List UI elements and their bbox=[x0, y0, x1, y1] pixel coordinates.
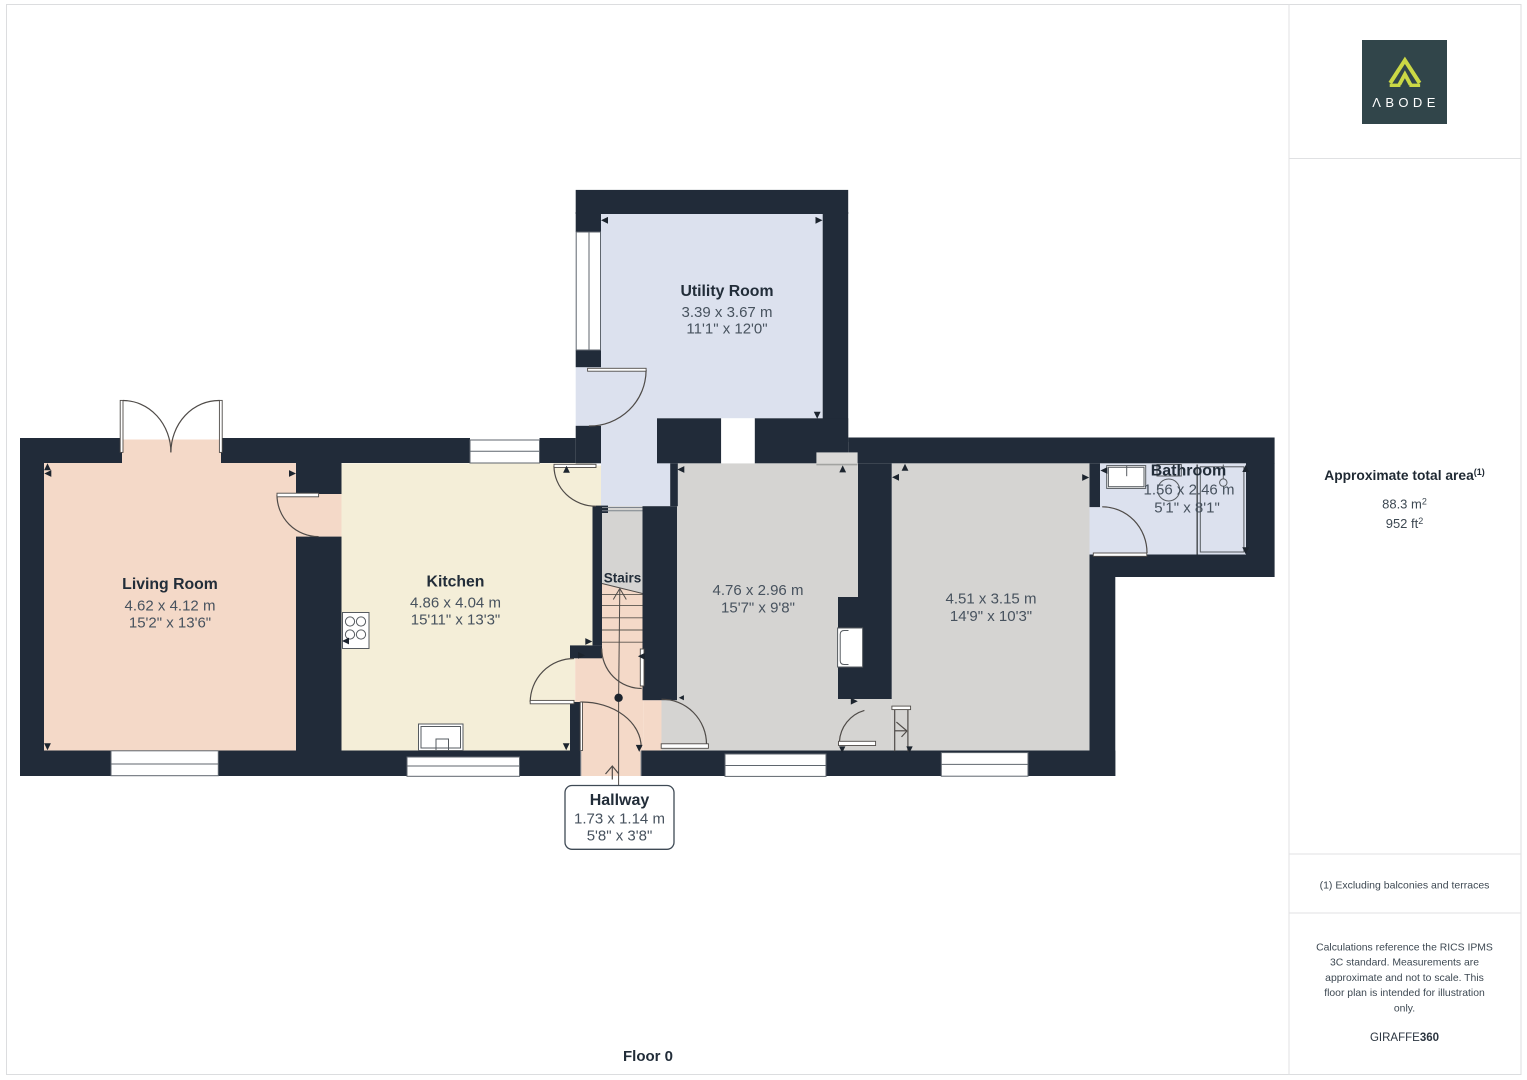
svg-text:3.39 x 3.67 m: 3.39 x 3.67 m bbox=[682, 304, 773, 321]
svg-text:Bathroom: Bathroom bbox=[1151, 463, 1227, 480]
svg-text:5'8" x 3'8": 5'8" x 3'8" bbox=[587, 827, 653, 844]
svg-text:4.51 x 3.15 m: 4.51 x 3.15 m bbox=[946, 591, 1037, 608]
svg-text:952 ft2: 952 ft2 bbox=[1386, 516, 1424, 531]
svg-text:GIRAFFE360: GIRAFFE360 bbox=[1370, 1032, 1439, 1044]
svg-text:15'2" x 13'6": 15'2" x 13'6" bbox=[129, 615, 211, 632]
svg-text:Living Room: Living Room bbox=[122, 576, 218, 593]
svg-text:4.76 x 2.96 m: 4.76 x 2.96 m bbox=[713, 582, 804, 599]
svg-text:15'11" x 13'3": 15'11" x 13'3" bbox=[411, 612, 501, 629]
svg-text:11'1" x 12'0": 11'1" x 12'0" bbox=[686, 321, 767, 338]
svg-text:4.86 x 4.04 m: 4.86 x 4.04 m bbox=[410, 595, 501, 612]
svg-text:floor plan is intended for ill: floor plan is intended for illustration bbox=[1324, 988, 1485, 999]
svg-text:approximate and not to scale.: approximate and not to scale. This bbox=[1325, 973, 1484, 984]
svg-text:1.73 x 1.14 m: 1.73 x 1.14 m bbox=[574, 811, 665, 828]
svg-text:(1) Excluding balconies and te: (1) Excluding balconies and terraces bbox=[1320, 880, 1490, 892]
svg-text:5'1" x 8'1": 5'1" x 8'1" bbox=[1154, 500, 1220, 517]
svg-text:88.3 m2: 88.3 m2 bbox=[1382, 497, 1427, 512]
svg-text:3C standard. Measurements are: 3C standard. Measurements are bbox=[1330, 958, 1479, 969]
svg-text:only.: only. bbox=[1394, 1003, 1415, 1014]
svg-text:Floor 0: Floor 0 bbox=[623, 1048, 673, 1065]
svg-text:Calculations reference the RIC: Calculations reference the RICS IPMS bbox=[1316, 943, 1493, 954]
svg-text:14'9" x 10'3": 14'9" x 10'3" bbox=[950, 608, 1032, 625]
svg-text:1.56 x 2.46 m: 1.56 x 2.46 m bbox=[1144, 482, 1235, 499]
svg-text:Utility Room: Utility Room bbox=[680, 283, 773, 300]
svg-text:4.62 x 4.12 m: 4.62 x 4.12 m bbox=[125, 598, 216, 615]
svg-text:Approximate total area(1): Approximate total area(1) bbox=[1324, 467, 1485, 483]
svg-text:Kitchen: Kitchen bbox=[427, 574, 485, 591]
svg-text:ΛBODE: ΛBODE bbox=[1372, 95, 1440, 110]
svg-text:15'7" x 9'8": 15'7" x 9'8" bbox=[721, 600, 795, 617]
svg-text:Hallway: Hallway bbox=[590, 792, 650, 809]
svg-text:Stairs: Stairs bbox=[604, 571, 642, 586]
